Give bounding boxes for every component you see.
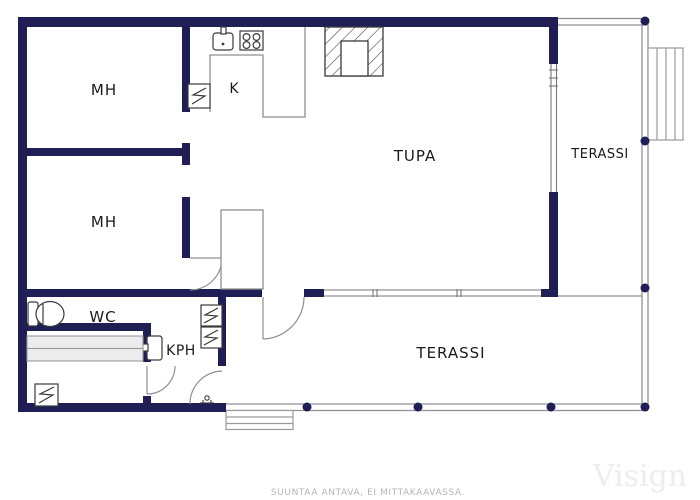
room-label-terrace-bottom: TERASSI (415, 344, 485, 362)
window-right-wall (549, 64, 558, 192)
toilet-icon (28, 302, 64, 327)
room-label-living-room: TUPA (393, 147, 437, 165)
room-label-bedroom-top: MH (91, 81, 117, 99)
stove-icon (240, 31, 263, 50)
door-terrace (263, 297, 304, 339)
terrace-post-icon (414, 403, 423, 412)
door-bathroom-left (147, 366, 175, 394)
door-hall (190, 258, 222, 290)
sauna-benches (27, 336, 143, 361)
terrace-post-icon (641, 137, 650, 146)
terrace-post-icon (547, 403, 556, 412)
floor-drain-icon (200, 396, 214, 403)
room-label-bedroom-bottom: MH (91, 213, 117, 231)
heater-icon (201, 305, 222, 326)
room-label-kitchen: K (229, 81, 239, 97)
heater-icon (35, 384, 58, 406)
windows (324, 64, 558, 297)
terrace-post-icon (641, 17, 650, 26)
heater-icon (201, 327, 222, 348)
terrace-post-icon (303, 403, 312, 412)
window-south-wall (324, 289, 541, 297)
room-label-bathroom: KPH (166, 343, 196, 359)
fireplace-icon (325, 27, 383, 76)
door-bathroom-right (190, 371, 222, 404)
room-label-terrace-right: TERASSI (570, 147, 628, 162)
caption-not-to-scale: SUUNTAA ANTAVA, EI MITTAKAAVASSA. (271, 488, 465, 498)
watermark: Visign (592, 459, 687, 494)
terrace-post-icon (641, 403, 650, 412)
floor-plan-svg: MH MH K TUPA TERASSI WC KPH TERASSI Visi… (0, 0, 700, 500)
sink-icon (213, 27, 233, 50)
floor-plan-image: MH MH K TUPA TERASSI WC KPH TERASSI Visi… (0, 0, 700, 500)
room-label-wc: WC (89, 308, 116, 326)
stairs-bottom (226, 411, 293, 430)
heater-icon (188, 84, 210, 108)
stairs-right (648, 48, 683, 140)
closet (221, 210, 263, 289)
terrace-post-icon (641, 284, 650, 293)
